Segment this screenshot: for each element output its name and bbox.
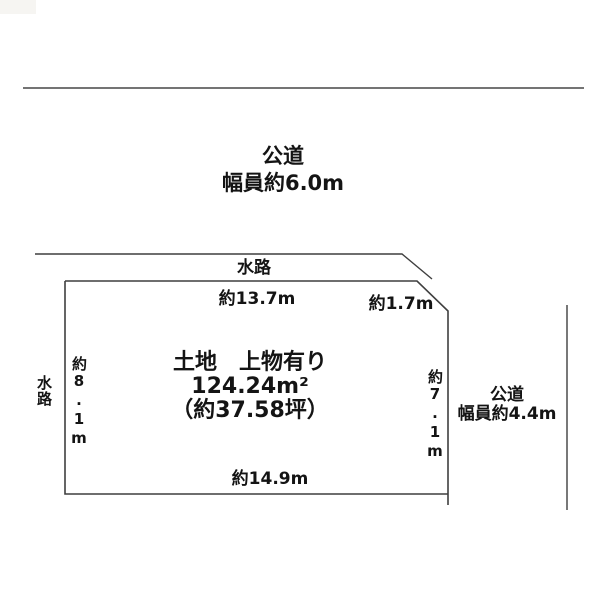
- waterway-top-label: 水路: [237, 258, 271, 278]
- dimension-right-label: 約7.1m: [427, 369, 443, 461]
- dimension-left-label: 約8.1m: [71, 356, 87, 448]
- diagram-lines: [0, 0, 600, 600]
- right-road-name: 公道: [458, 386, 557, 405]
- waterway-left-label: 水路: [36, 375, 52, 407]
- right-road-width: 幅員約4.4m: [458, 405, 557, 424]
- parcel-area-tsubo: （約37.58坪）: [171, 399, 329, 423]
- dimension-top-label: 約13.7m: [219, 289, 296, 309]
- dimension-top-right-label: 約1.7m: [369, 294, 434, 314]
- parcel-area-sqm: 124.24m²: [171, 375, 329, 399]
- right-road-label: 公道 幅員約4.4m: [458, 386, 557, 424]
- waterway-line: [35, 254, 432, 279]
- parcel-info: 土地 上物有り 124.24m² （約37.58坪）: [171, 351, 329, 423]
- scan-artifact: [0, 0, 36, 14]
- top-road-width: 幅員約6.0m: [222, 170, 344, 197]
- land-plot-diagram: 公道 幅員約6.0m 水路 約13.7m 約1.7m 水路 約8.1m 土地 上…: [0, 0, 600, 600]
- top-road-label: 公道 幅員約6.0m: [222, 143, 344, 197]
- top-road-name: 公道: [222, 143, 344, 170]
- parcel-title: 土地 上物有り: [171, 351, 329, 375]
- dimension-bottom-label: 約14.9m: [232, 469, 309, 489]
